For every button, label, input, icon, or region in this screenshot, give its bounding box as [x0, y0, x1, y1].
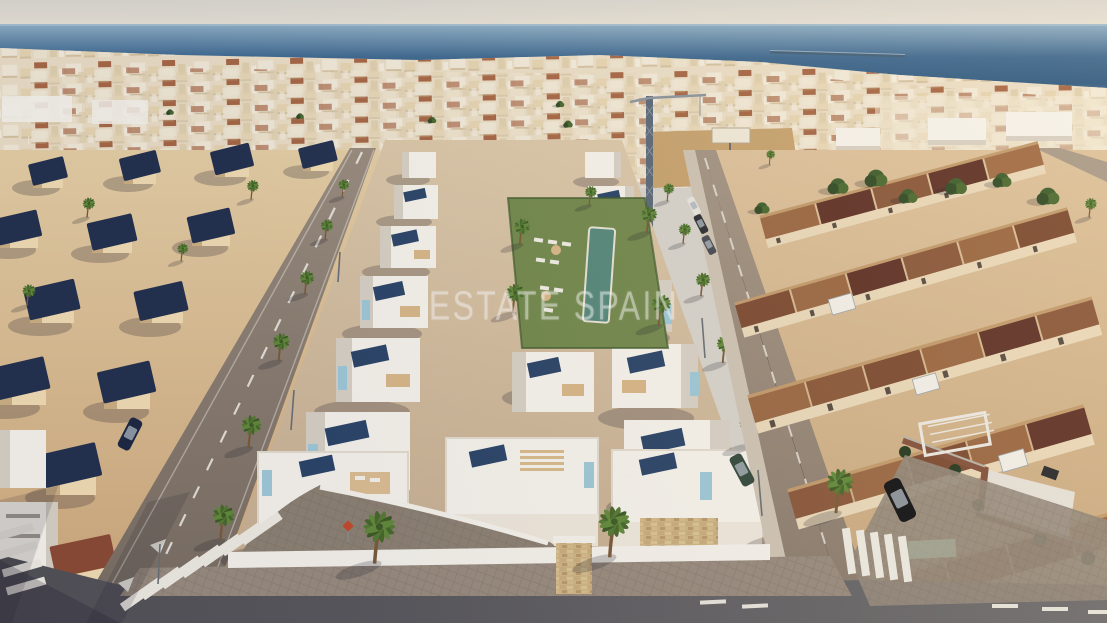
- horizon-line: [0, 24, 1107, 26]
- parasol: [541, 291, 551, 301]
- parasol: [551, 245, 561, 255]
- aerial-photo: ESTATE SPAIN: [0, 0, 1107, 623]
- scene-svg: [0, 0, 1107, 623]
- swimming-pool: [583, 227, 615, 323]
